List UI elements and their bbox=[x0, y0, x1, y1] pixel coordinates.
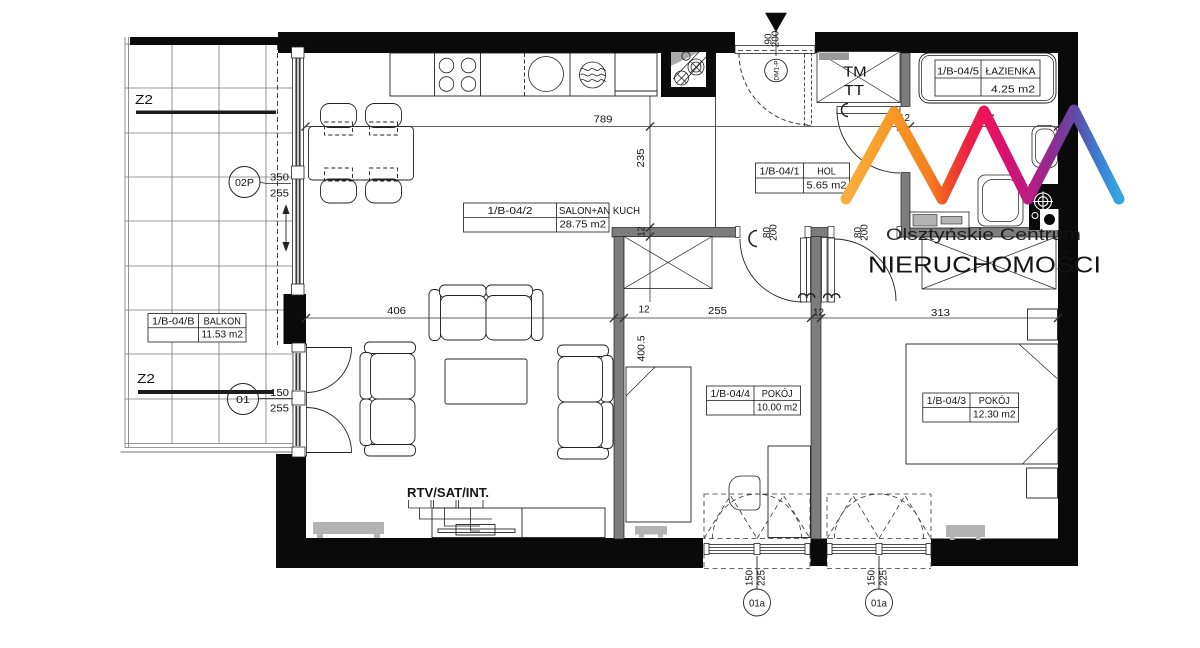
svg-text:1/B-04/5: 1/B-04/5 bbox=[937, 67, 979, 78]
svg-text:1/B-04/1: 1/B-04/1 bbox=[760, 167, 800, 178]
svg-text:HOL: HOL bbox=[817, 167, 836, 178]
svg-text:NIERUCHOMOŚCI: NIERUCHOMOŚCI bbox=[868, 251, 1101, 278]
svg-text:225: 225 bbox=[879, 570, 890, 586]
svg-text:255: 255 bbox=[270, 404, 289, 415]
svg-text:400.5: 400.5 bbox=[637, 335, 648, 361]
svg-text:313: 313 bbox=[931, 308, 950, 319]
svg-text:TT: TT bbox=[844, 82, 864, 99]
svg-text:12: 12 bbox=[813, 308, 824, 319]
svg-text:235: 235 bbox=[636, 148, 647, 167]
svg-text:1/B-04/4: 1/B-04/4 bbox=[711, 389, 751, 400]
svg-text:255: 255 bbox=[708, 306, 727, 317]
svg-text:01a: 01a bbox=[749, 598, 765, 610]
svg-text:350: 350 bbox=[270, 173, 289, 184]
svg-text:225: 225 bbox=[757, 570, 768, 586]
svg-text:150: 150 bbox=[867, 570, 878, 586]
svg-text:POKÓJ: POKÓJ bbox=[762, 387, 793, 400]
svg-text:11.53 m2: 11.53 m2 bbox=[202, 330, 244, 341]
svg-text:255: 255 bbox=[270, 189, 289, 200]
svg-text:406: 406 bbox=[387, 306, 406, 317]
svg-text:02P: 02P bbox=[235, 177, 254, 189]
svg-text:BALKON: BALKON bbox=[204, 316, 241, 327]
svg-text:789: 789 bbox=[594, 115, 613, 126]
svg-text:DM1-P: DM1-P bbox=[774, 60, 781, 80]
svg-text:ŁAZIENKA: ŁAZIENKA bbox=[986, 67, 1036, 78]
svg-text:10.00 m2: 10.00 m2 bbox=[757, 403, 798, 414]
svg-text:28.75 m2: 28.75 m2 bbox=[560, 220, 607, 231]
svg-text:1/B-04/2: 1/B-04/2 bbox=[488, 206, 534, 217]
svg-text:Z2: Z2 bbox=[135, 93, 153, 107]
svg-text:12.30 m2: 12.30 m2 bbox=[973, 410, 1016, 421]
svg-text:RTV/SAT/INT.: RTV/SAT/INT. bbox=[407, 485, 489, 500]
svg-text:200: 200 bbox=[769, 224, 780, 241]
svg-text:TM: TM bbox=[843, 64, 867, 81]
svg-text:12: 12 bbox=[637, 226, 648, 236]
svg-text:1/B-04/B: 1/B-04/B bbox=[152, 316, 195, 327]
svg-text:Olsztyńskie Centrum: Olsztyńskie Centrum bbox=[886, 225, 1081, 244]
svg-text:200: 200 bbox=[860, 224, 871, 241]
svg-text:SALON+AN KUCH: SALON+AN KUCH bbox=[559, 206, 640, 217]
svg-text:150: 150 bbox=[270, 388, 289, 399]
svg-text:1/B-04/3: 1/B-04/3 bbox=[927, 396, 967, 407]
svg-text:POKÓJ: POKÓJ bbox=[979, 394, 1010, 407]
svg-text:150: 150 bbox=[745, 570, 756, 586]
svg-text:01a: 01a bbox=[871, 598, 887, 610]
svg-text:Z2: Z2 bbox=[137, 372, 155, 386]
svg-text:5.65 m2: 5.65 m2 bbox=[807, 181, 847, 192]
svg-text:12: 12 bbox=[639, 305, 650, 316]
svg-text:4.25 m2: 4.25 m2 bbox=[991, 85, 1036, 96]
svg-text:200: 200 bbox=[771, 30, 782, 47]
svg-text:01: 01 bbox=[236, 394, 250, 406]
